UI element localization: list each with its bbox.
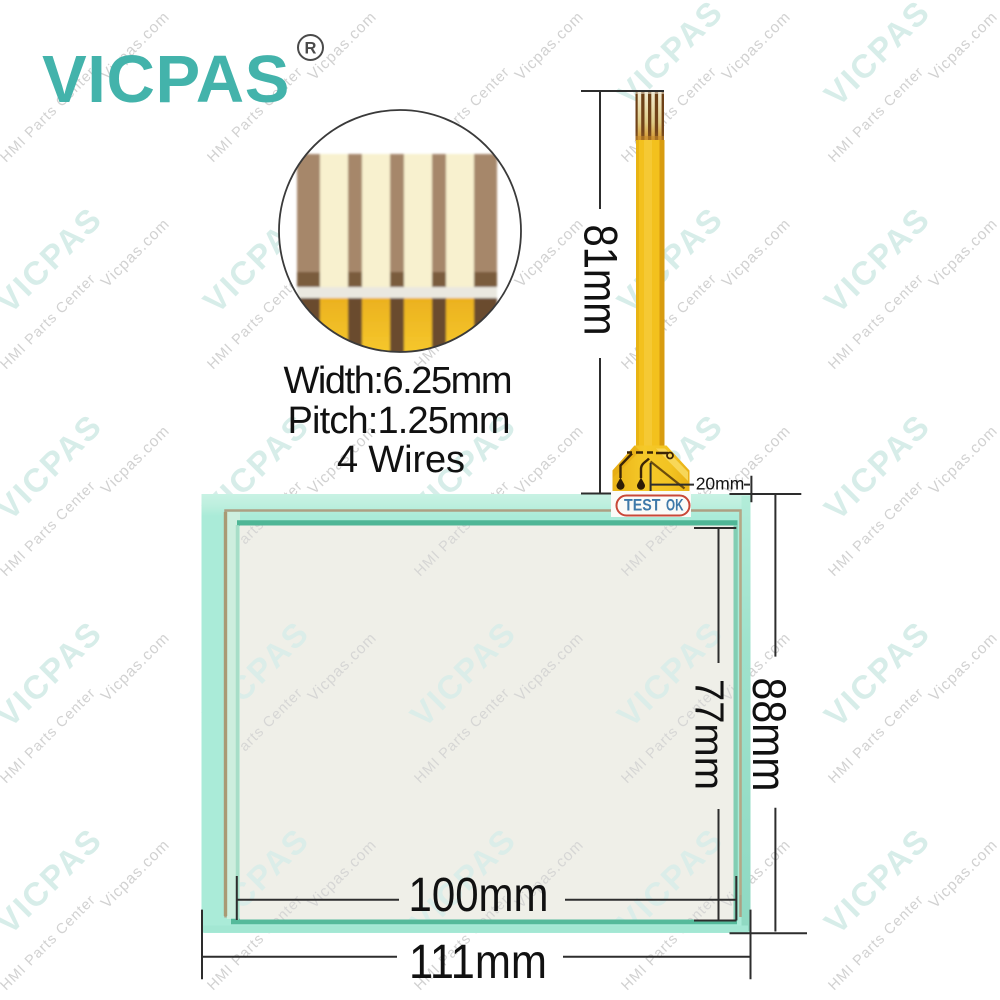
- svg-text:Pitch:1.25mm: Pitch:1.25mm: [288, 400, 511, 442]
- svg-text:81mm: 81mm: [575, 225, 628, 336]
- svg-text:20mm: 20mm: [696, 474, 745, 494]
- svg-text:VICPAS: VICPAS: [42, 42, 290, 117]
- svg-text:TEST: TEST: [624, 496, 661, 515]
- svg-text:88mm: 88mm: [743, 678, 796, 792]
- svg-text:4 Wires: 4 Wires: [337, 439, 465, 481]
- svg-text:OK: OK: [666, 496, 684, 515]
- svg-text:Width:6.25mm: Width:6.25mm: [284, 360, 513, 402]
- svg-text:77mm: 77mm: [687, 679, 733, 790]
- svg-text:R: R: [305, 40, 317, 58]
- svg-text:111mm: 111mm: [409, 936, 547, 989]
- svg-text:100mm: 100mm: [409, 869, 549, 922]
